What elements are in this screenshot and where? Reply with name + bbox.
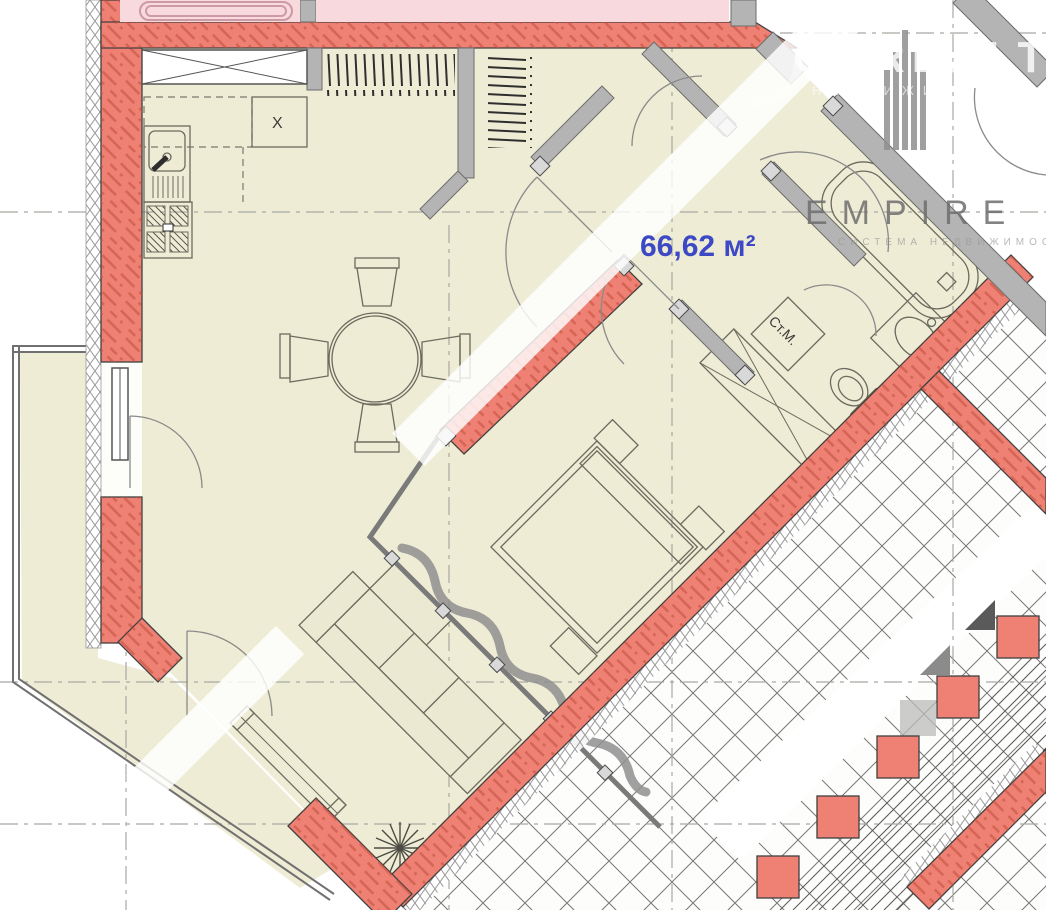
area-label: 66,62 м²	[640, 230, 756, 263]
empire-title: EMPIRE	[805, 194, 1019, 232]
vent-label: X	[272, 115, 283, 132]
adjacent-units	[120, 0, 729, 22]
neighbor-door-arc	[974, 88, 1046, 175]
balcony-window	[101, 362, 142, 497]
vent-shaft	[142, 50, 307, 84]
onrealt-title: ONREALT	[793, 33, 1046, 82]
onrealt-subtitle: НЕДВИЖИМОСТЬ	[812, 83, 1033, 98]
floor-plan-canvas: ONREALT НЕДВИЖИМОСТЬ EMPIRE СИСТЕМА НЕДВ…	[0, 0, 1046, 910]
empire-subtitle: СИСТЕМА НЕДВИЖИМОСТИ	[838, 237, 1046, 248]
stair-shade	[900, 700, 936, 736]
empire-watermark: EMPIRE СИСТЕМА НЕДВИЖИМОСТИ	[805, 194, 1046, 248]
